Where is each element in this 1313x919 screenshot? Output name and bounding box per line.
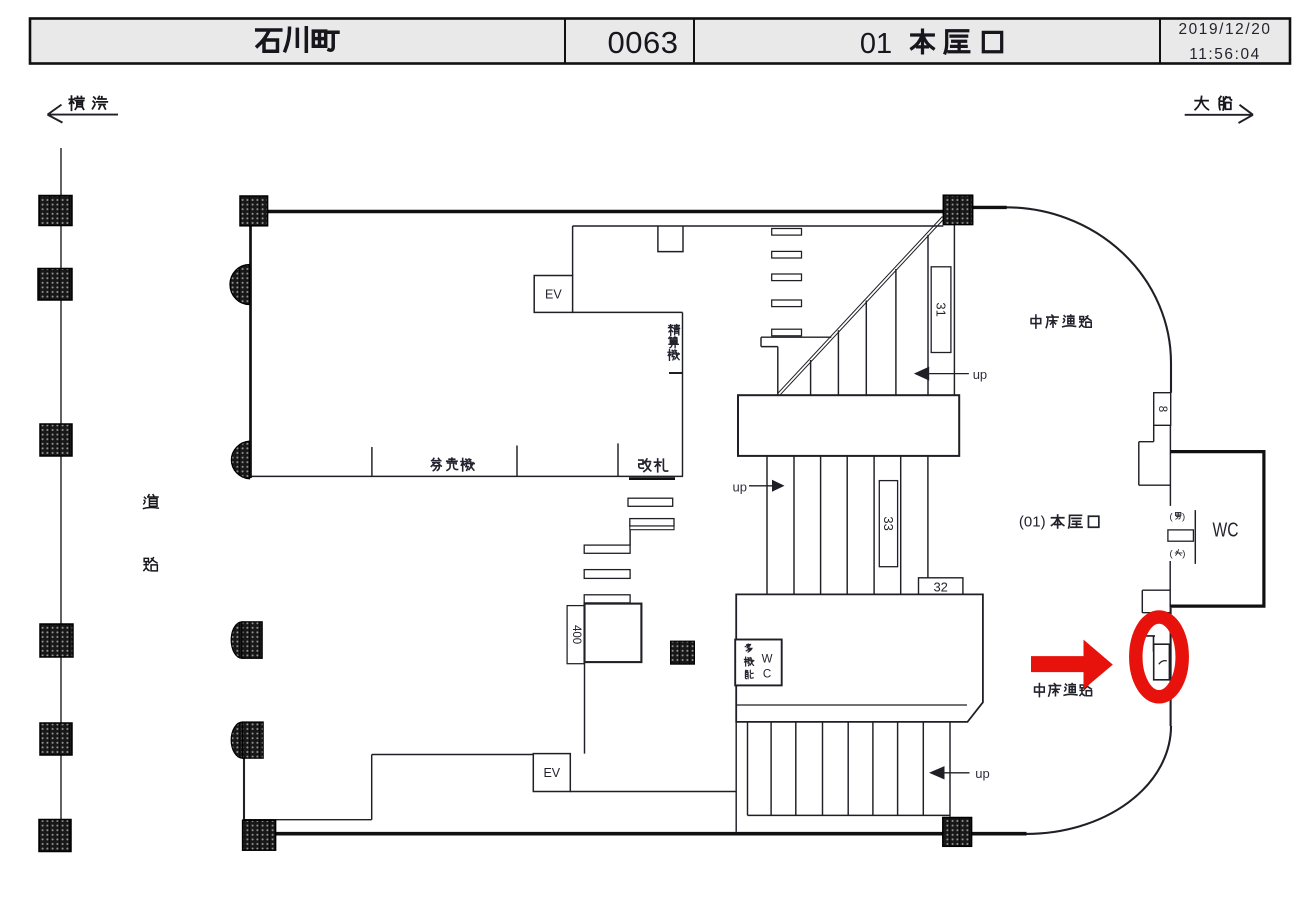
svg-text:8: 8 <box>1156 406 1168 412</box>
svg-text:): ) <box>1182 549 1185 560</box>
svg-text:11:56:04: 11:56:04 <box>1189 46 1261 63</box>
svg-text:33: 33 <box>881 516 896 530</box>
svg-text:0063: 0063 <box>608 25 679 60</box>
svg-text:01: 01 <box>860 28 892 60</box>
svg-text:32: 32 <box>933 579 947 594</box>
svg-text:C: C <box>763 669 771 681</box>
svg-text:400: 400 <box>570 625 582 644</box>
svg-text:up: up <box>733 479 747 494</box>
svg-text:31: 31 <box>934 302 949 316</box>
svg-text:2019/12/20: 2019/12/20 <box>1178 21 1271 38</box>
svg-text:(: ( <box>1170 512 1174 523</box>
svg-text:up: up <box>973 367 987 382</box>
svg-text:EV: EV <box>543 766 560 780</box>
svg-text:up: up <box>975 766 989 781</box>
svg-text:EV: EV <box>545 288 562 302</box>
svg-text:WC: WC <box>1213 519 1239 541</box>
svg-text:(: ( <box>1170 549 1174 560</box>
svg-text:): ) <box>1182 512 1185 523</box>
svg-text:(01): (01) <box>1019 514 1046 531</box>
svg-text:W: W <box>762 654 773 666</box>
